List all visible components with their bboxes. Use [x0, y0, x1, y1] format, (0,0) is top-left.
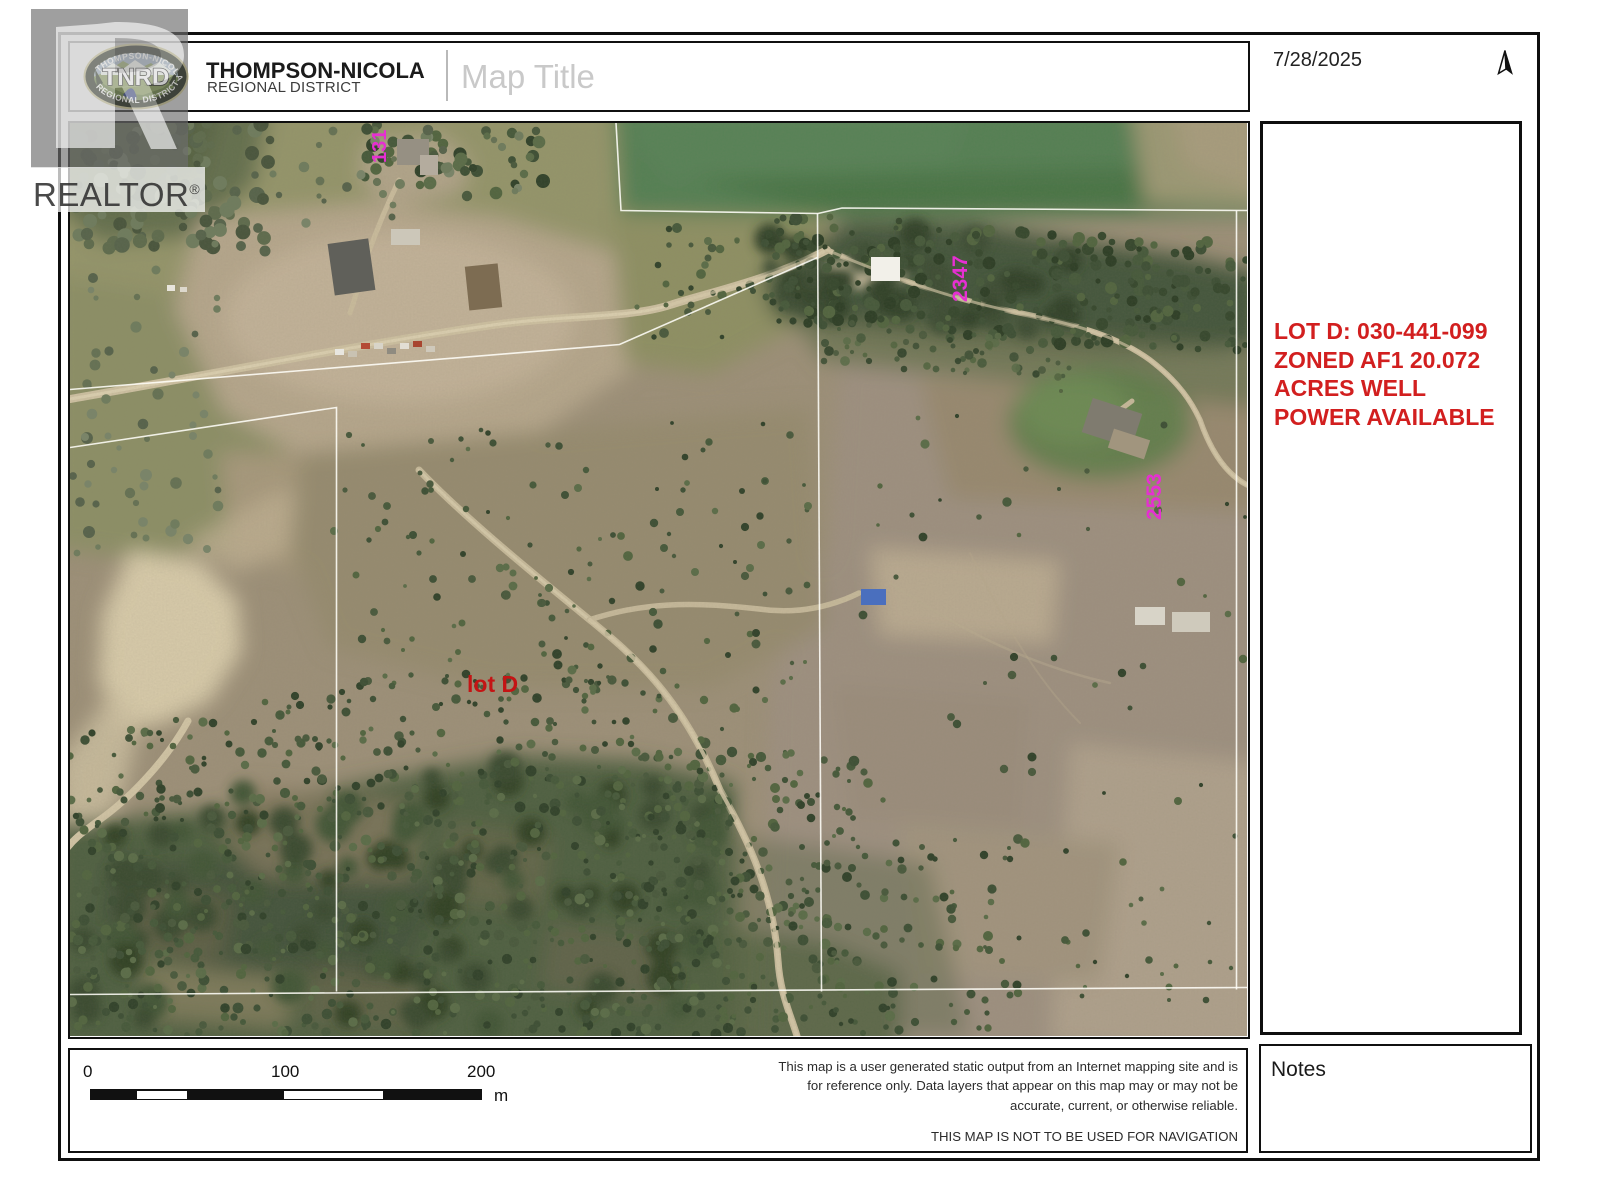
svg-text:2347: 2347 [949, 255, 972, 302]
svg-text:lot D: lot D [467, 671, 518, 697]
svg-text:TNRD: TNRD [103, 64, 170, 91]
svg-text:131: 131 [369, 130, 391, 163]
svg-text:2553: 2553 [1143, 473, 1166, 520]
